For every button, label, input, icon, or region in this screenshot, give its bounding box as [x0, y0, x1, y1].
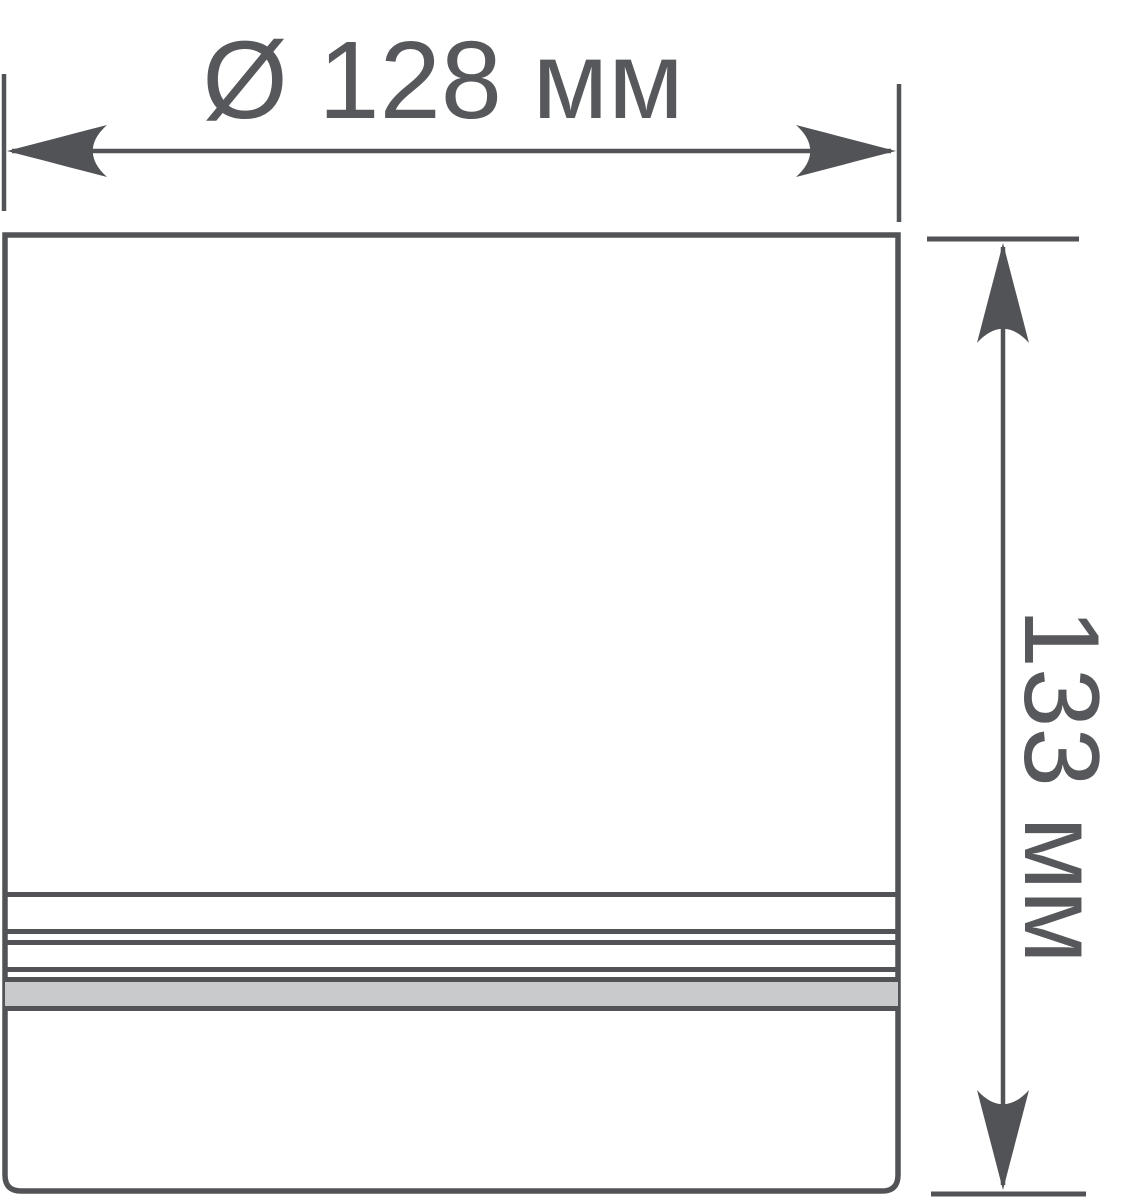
dimension-drawing: Ø 128 мм 133 мм: [0, 0, 1130, 1200]
trim-band: [5, 982, 898, 1006]
diameter-label: Ø 128 мм: [202, 19, 683, 142]
height-label: 133 мм: [1002, 608, 1122, 963]
product-body-outline: [5, 235, 898, 1191]
dimension-drawing-canvas: Ø 128 мм 133 мм: [0, 0, 1130, 1200]
